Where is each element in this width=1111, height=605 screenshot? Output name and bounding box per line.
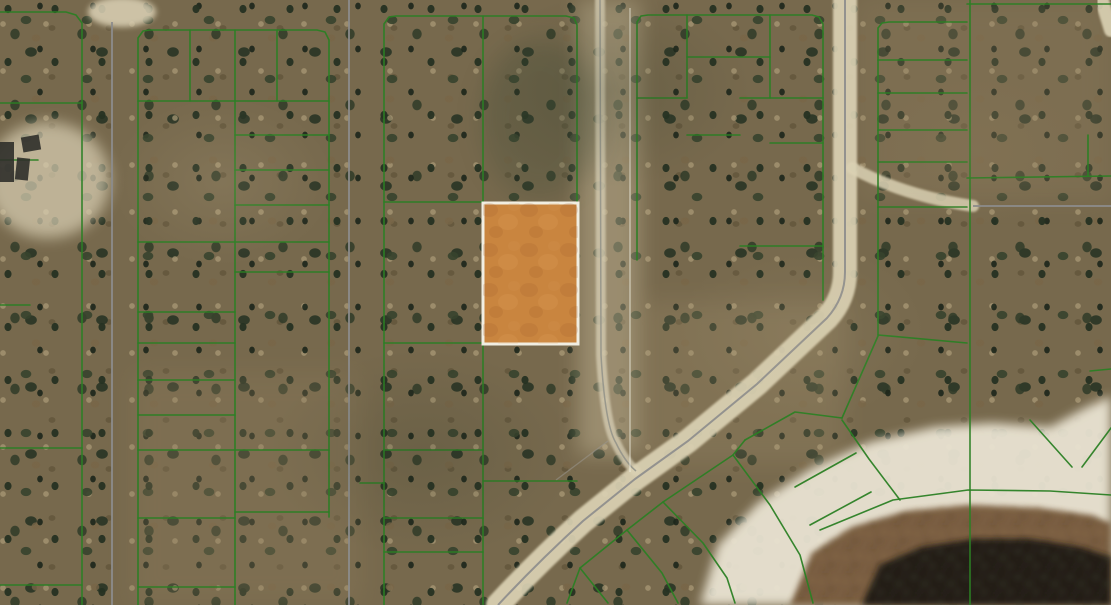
parcel-line xyxy=(0,12,82,605)
map-svg xyxy=(0,0,1111,605)
highlighted-parcel-layer xyxy=(483,203,578,344)
parcel-line xyxy=(1090,369,1111,371)
building xyxy=(21,135,41,153)
parcel-line xyxy=(627,530,678,603)
building xyxy=(15,157,30,180)
building xyxy=(0,142,14,182)
highlighted-parcel[interactable] xyxy=(483,203,578,344)
parcel-line xyxy=(878,335,967,343)
map-canvas[interactable] xyxy=(0,0,1111,605)
parcel-line xyxy=(842,336,878,418)
parcel-line xyxy=(580,568,608,603)
